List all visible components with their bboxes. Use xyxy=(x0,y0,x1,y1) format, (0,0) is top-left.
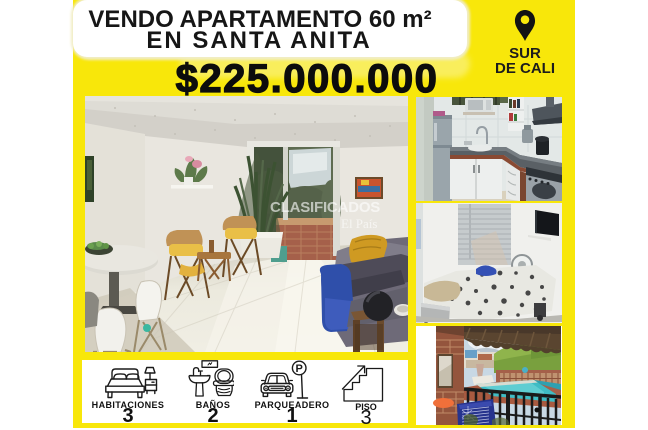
svg-text:P: P xyxy=(296,363,303,375)
svg-text:El País: El País xyxy=(341,216,377,231)
svg-text:CLASIFICADOS: CLASIFICADOS xyxy=(270,199,380,216)
